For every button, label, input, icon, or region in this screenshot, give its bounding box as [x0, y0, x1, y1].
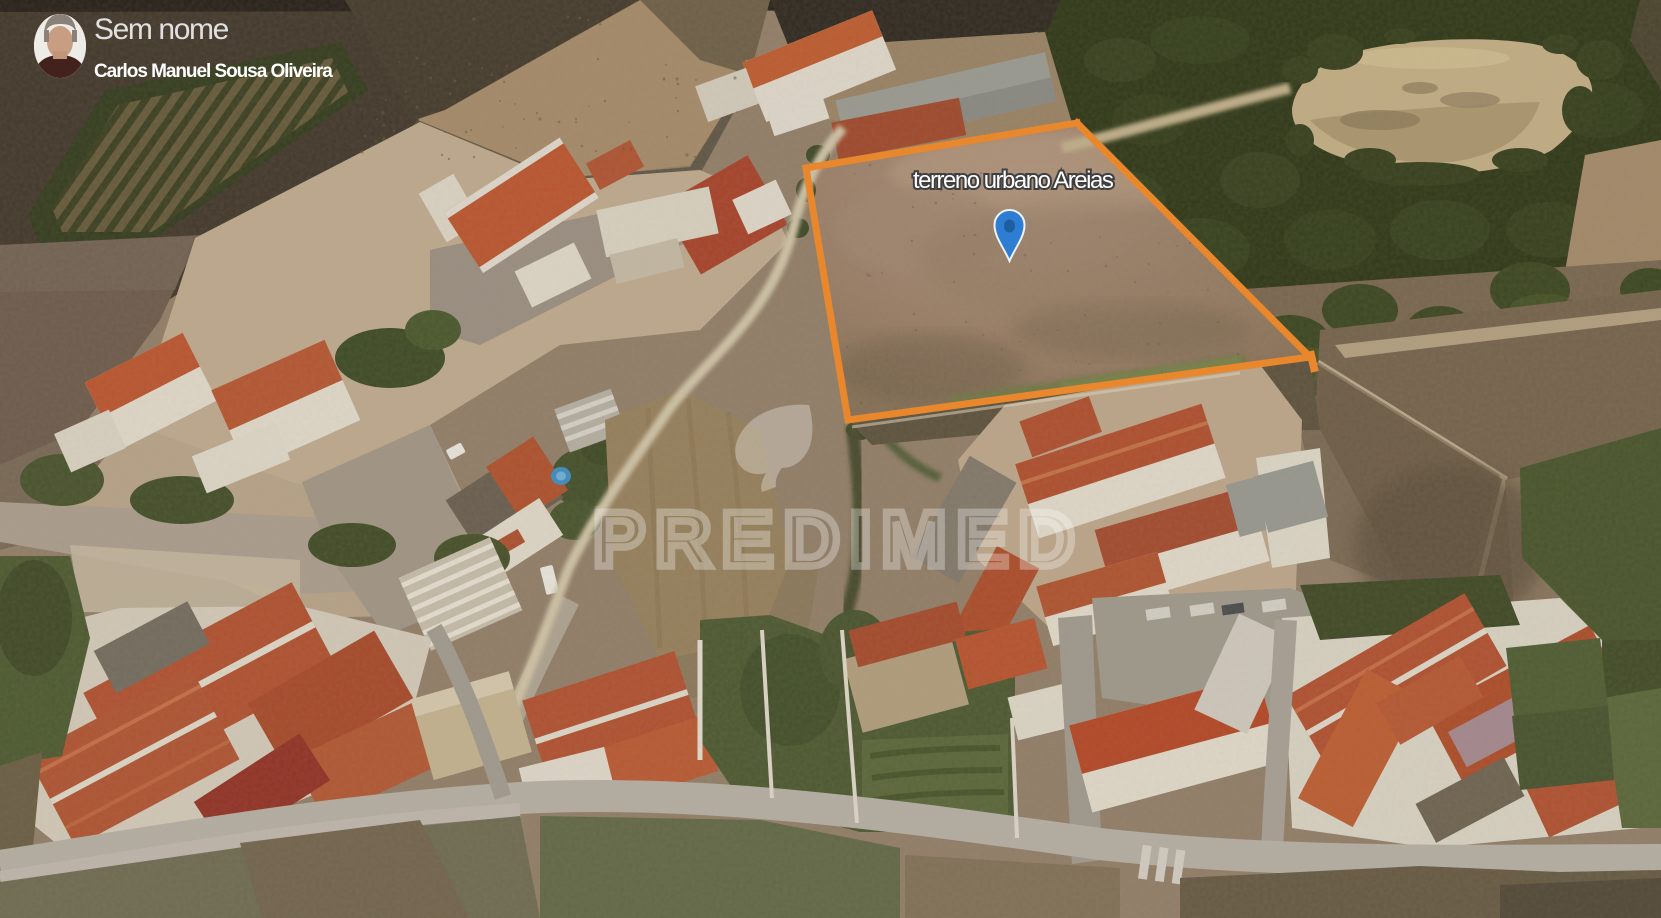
- svg-text:PREDIMED: PREDIMED: [593, 495, 1085, 583]
- svg-text:Carlos Manuel Sousa Oliveira: Carlos Manuel Sousa Oliveira: [94, 61, 333, 82]
- svg-text:Sem nome: Sem nome: [94, 13, 229, 46]
- svg-text:terreno urbano Areias: terreno urbano Areias: [913, 167, 1114, 194]
